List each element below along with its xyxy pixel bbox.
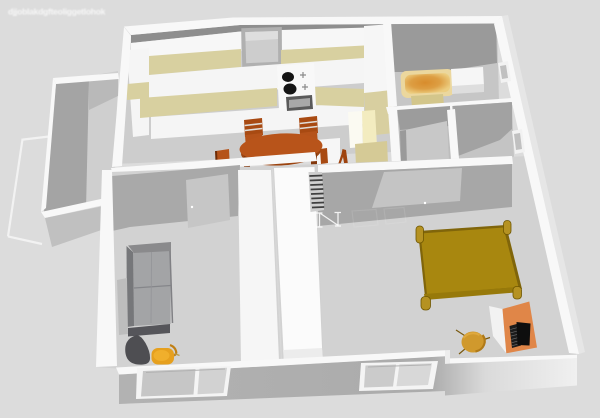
svg-text:djjoblakdgfteoliggetlohok: djjoblakdgfteoliggetlohok bbox=[8, 7, 106, 17]
